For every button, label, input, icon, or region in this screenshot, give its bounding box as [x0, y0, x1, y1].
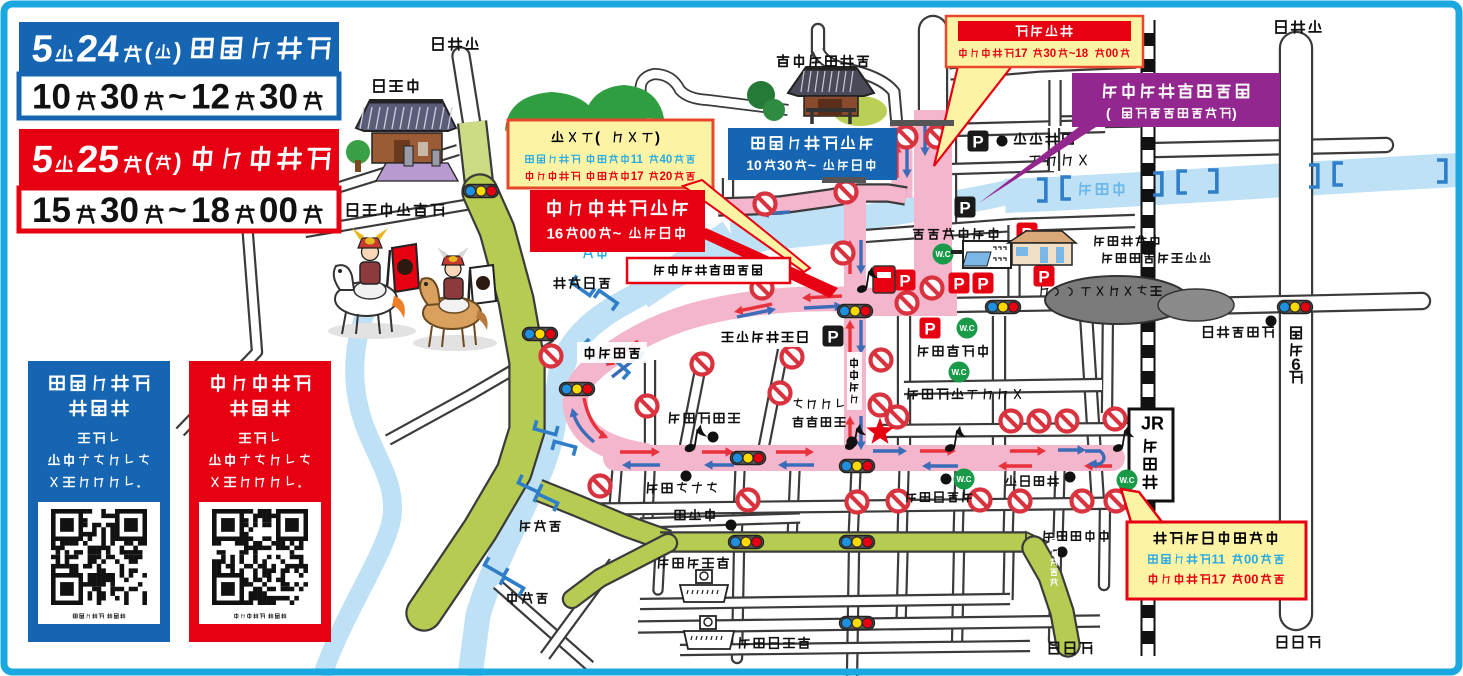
svg-text:30: 30	[259, 78, 298, 117]
svg-text:W.C: W.C	[959, 324, 974, 333]
svg-text:~: ~	[168, 78, 187, 114]
svg-text:5: 5	[30, 139, 55, 181]
svg-text:W.C: W.C	[951, 368, 966, 377]
svg-text:30: 30	[1043, 48, 1056, 60]
svg-text:W.C: W.C	[935, 250, 950, 259]
svg-text:~: ~	[808, 157, 816, 173]
svg-text:40: 40	[660, 154, 673, 166]
svg-text:P: P	[953, 275, 964, 294]
svg-text:): )	[1232, 105, 1237, 121]
svg-text:17: 17	[631, 171, 644, 183]
svg-text:00: 00	[1244, 572, 1258, 587]
svg-text:P: P	[827, 328, 838, 347]
svg-text:10: 10	[32, 78, 71, 117]
svg-text:30: 30	[100, 191, 139, 230]
svg-text:P: P	[1038, 268, 1049, 287]
svg-text:30: 30	[100, 78, 139, 117]
svg-text:17: 17	[1015, 48, 1028, 60]
svg-text:5: 5	[30, 29, 55, 71]
svg-text:10: 10	[746, 157, 762, 173]
svg-text:25: 25	[75, 139, 121, 181]
svg-text:20: 20	[660, 171, 673, 183]
svg-text:): )	[655, 129, 660, 146]
svg-text:12: 12	[191, 78, 230, 117]
svg-text:~18: ~18	[1069, 48, 1089, 60]
svg-text:18: 18	[191, 191, 230, 230]
svg-text:JR: JR	[1141, 414, 1164, 434]
svg-text:.: .	[137, 474, 141, 491]
svg-text:00: 00	[580, 225, 597, 242]
svg-text:W.C: W.C	[1119, 476, 1134, 485]
svg-text:P: P	[899, 272, 910, 291]
svg-text:15: 15	[32, 191, 71, 230]
svg-text:.: .	[298, 474, 302, 491]
svg-text:11: 11	[631, 154, 644, 166]
svg-text:W.C: W.C	[956, 475, 971, 484]
svg-text:00: 00	[1244, 552, 1258, 567]
svg-text:16: 16	[547, 225, 564, 242]
svg-text:00: 00	[259, 191, 298, 230]
svg-text:P: P	[977, 275, 988, 294]
svg-text:00: 00	[1106, 48, 1119, 60]
svg-text:P: P	[959, 199, 970, 218]
svg-text:(: (	[595, 129, 600, 146]
svg-text:11: 11	[1212, 552, 1226, 567]
svg-text:30: 30	[777, 157, 793, 173]
svg-text:~: ~	[613, 225, 622, 242]
svg-text:24: 24	[75, 29, 121, 71]
svg-text:~: ~	[168, 192, 187, 228]
svg-text:P: P	[924, 320, 935, 339]
svg-text:P: P	[972, 133, 983, 152]
svg-text:(: (	[1106, 105, 1111, 121]
svg-text:17: 17	[1212, 572, 1226, 587]
